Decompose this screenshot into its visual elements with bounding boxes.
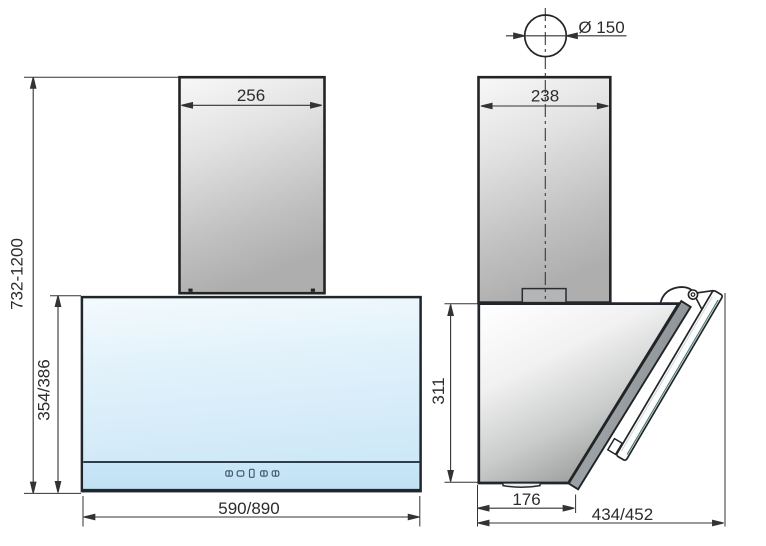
svg-text:256: 256 <box>237 86 265 105</box>
svg-text:434/452: 434/452 <box>592 505 653 524</box>
svg-text:590/890: 590/890 <box>218 499 279 518</box>
svg-text:354/386: 354/386 <box>35 359 54 420</box>
svg-text:176: 176 <box>512 490 540 509</box>
svg-text:Ø 150: Ø 150 <box>578 18 624 37</box>
svg-text:238: 238 <box>531 86 559 105</box>
svg-text:732-1200: 732-1200 <box>8 238 27 310</box>
svg-text:311: 311 <box>429 377 448 404</box>
